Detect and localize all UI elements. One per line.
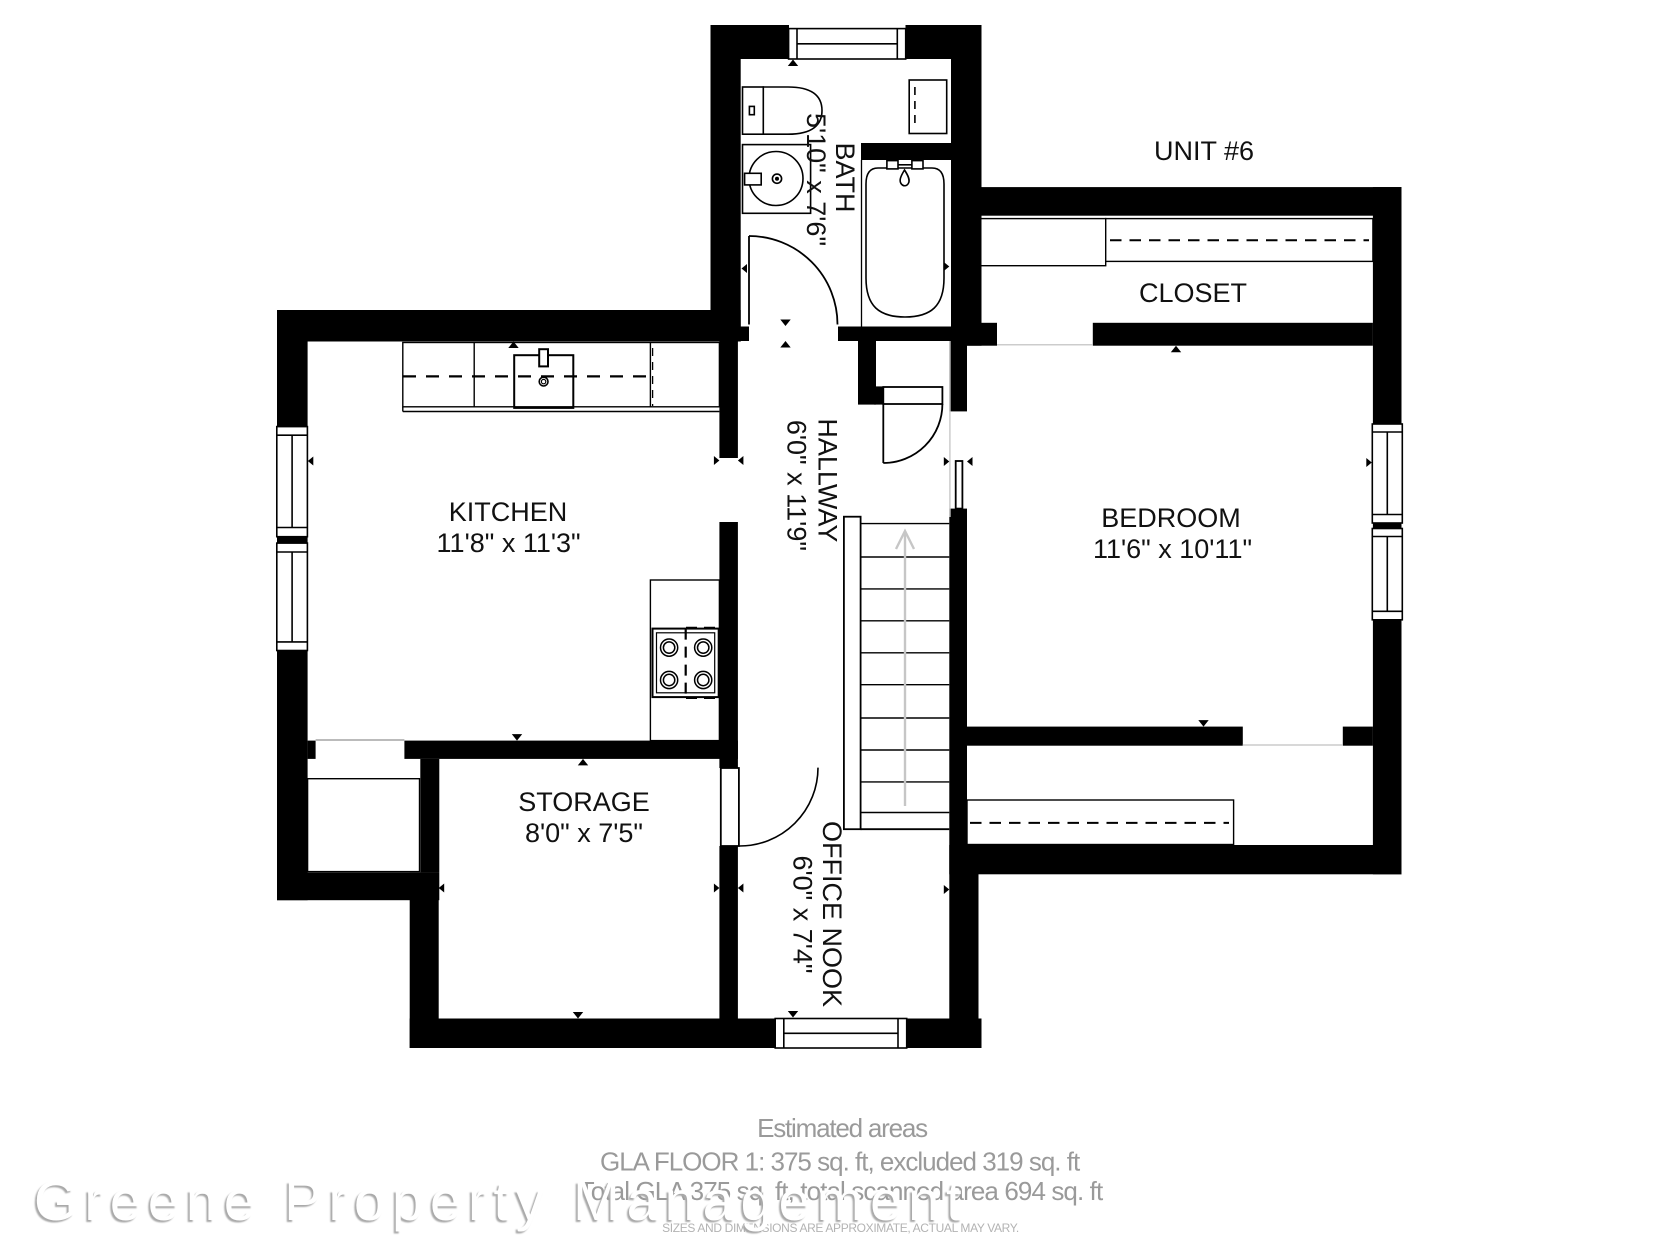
svg-text:HALLWAY: HALLWAY bbox=[813, 418, 843, 542]
svg-text:11'8" x 11'3": 11'8" x 11'3" bbox=[437, 528, 581, 558]
svg-text:11'6" x 10'11": 11'6" x 10'11" bbox=[1093, 534, 1252, 564]
svg-text:BEDROOM: BEDROOM bbox=[1101, 503, 1241, 533]
svg-text:BATH: BATH bbox=[830, 142, 860, 212]
svg-text:UNIT #6: UNIT #6 bbox=[1154, 136, 1254, 166]
svg-text:Estimated areas: Estimated areas bbox=[757, 1113, 928, 1143]
svg-text:6'0" x 11'9": 6'0" x 11'9" bbox=[782, 420, 812, 551]
svg-text:KITCHEN: KITCHEN bbox=[449, 497, 568, 527]
svg-text:STORAGE: STORAGE bbox=[518, 787, 650, 817]
svg-text:CLOSET: CLOSET bbox=[1139, 278, 1247, 308]
svg-text:8'0" x 7'5": 8'0" x 7'5" bbox=[525, 818, 643, 848]
svg-text:5'10" x 7'6": 5'10" x 7'6" bbox=[801, 113, 831, 246]
svg-text:OFFICE NOOK: OFFICE NOOK bbox=[817, 821, 847, 1007]
svg-text:6'0" x 7'4": 6'0" x 7'4" bbox=[788, 855, 818, 973]
